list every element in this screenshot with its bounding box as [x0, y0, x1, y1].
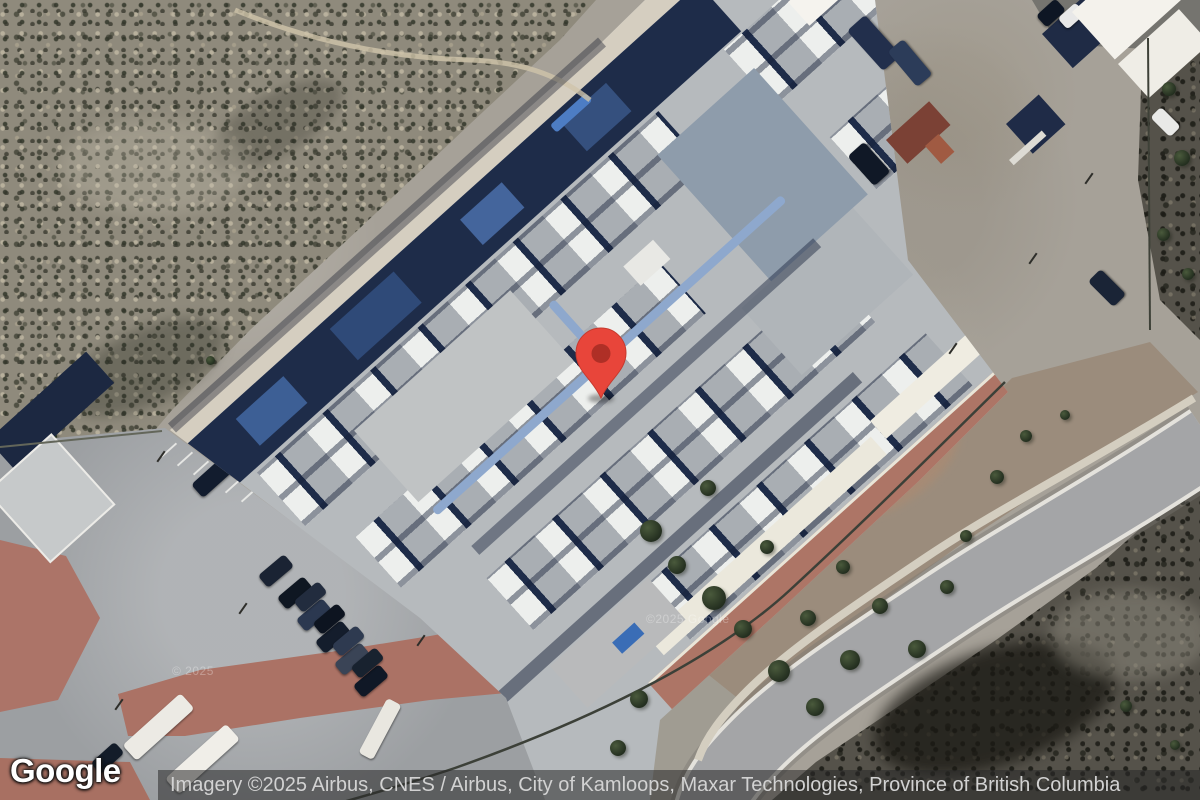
tree [700, 480, 716, 496]
tree [1174, 150, 1190, 166]
tree [610, 740, 626, 756]
attribution-text: Imagery ©2025 Airbus, CNES / Airbus, Cit… [158, 774, 1120, 797]
tree [840, 650, 860, 670]
tree [1157, 228, 1170, 241]
location-pin[interactable] [574, 326, 628, 400]
tree [990, 470, 1004, 484]
tree [1060, 410, 1070, 420]
imagery-watermark: © 2025 [172, 664, 214, 678]
tree [806, 698, 824, 716]
tree [800, 610, 816, 626]
tree [768, 660, 790, 682]
attribution-bar: Imagery ©2025 Airbus, CNES / Airbus, Cit… [158, 770, 1200, 800]
map-canvas[interactable]: © 2025 ©2025 Google Google Imagery ©2025… [0, 0, 1200, 800]
tree [630, 690, 648, 708]
tree [872, 598, 888, 614]
retaining-wall-shadow [172, 42, 602, 428]
tree [836, 560, 850, 574]
tree [760, 540, 774, 554]
google-logo[interactable]: Google [10, 752, 121, 790]
tree [1170, 740, 1180, 750]
tree [734, 620, 752, 638]
gravel-yard-fence [1148, 38, 1150, 330]
tree [640, 520, 662, 542]
tree [1120, 700, 1132, 712]
tree [940, 580, 954, 594]
scrub-boundary-fence [0, 431, 162, 447]
pin-icon [574, 326, 628, 400]
imagery-watermark: ©2025 Google [646, 612, 730, 626]
tree [960, 530, 972, 542]
tree [1182, 268, 1194, 280]
tree [1162, 82, 1176, 96]
tree [1020, 430, 1032, 442]
tree [668, 556, 686, 574]
dirt-trail [235, 10, 590, 100]
tree [702, 586, 726, 610]
road-surface [710, 440, 1200, 800]
tree [908, 640, 926, 658]
